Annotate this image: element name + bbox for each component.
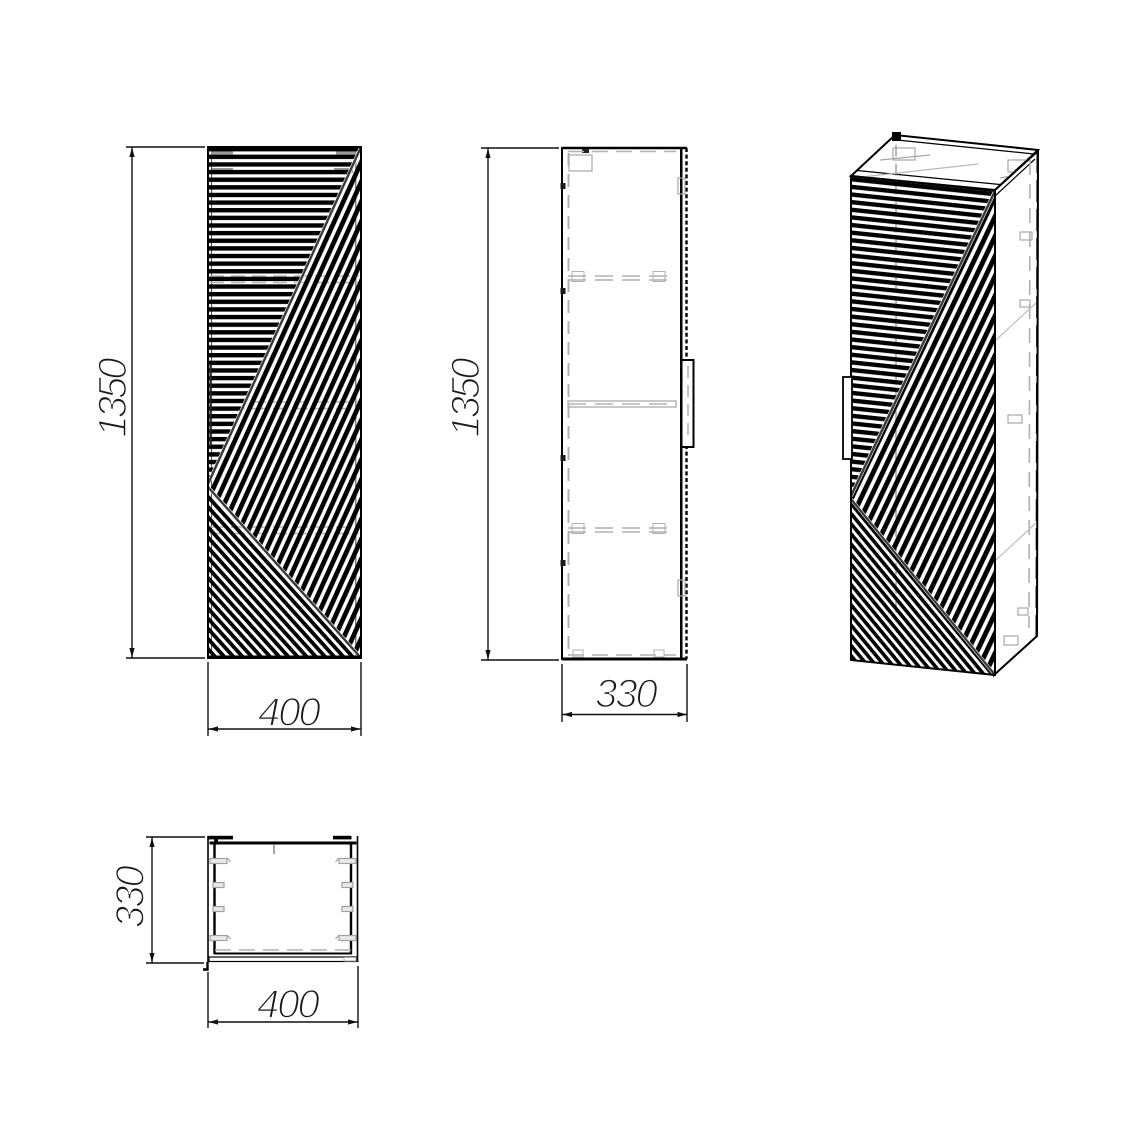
svg-text:400: 400 bbox=[258, 691, 320, 735]
svg-text:1350: 1350 bbox=[91, 358, 135, 438]
svg-text:400: 400 bbox=[257, 983, 319, 1027]
svg-text:330: 330 bbox=[109, 866, 153, 928]
svg-text:1350: 1350 bbox=[444, 358, 488, 438]
svg-text:330: 330 bbox=[595, 672, 657, 716]
